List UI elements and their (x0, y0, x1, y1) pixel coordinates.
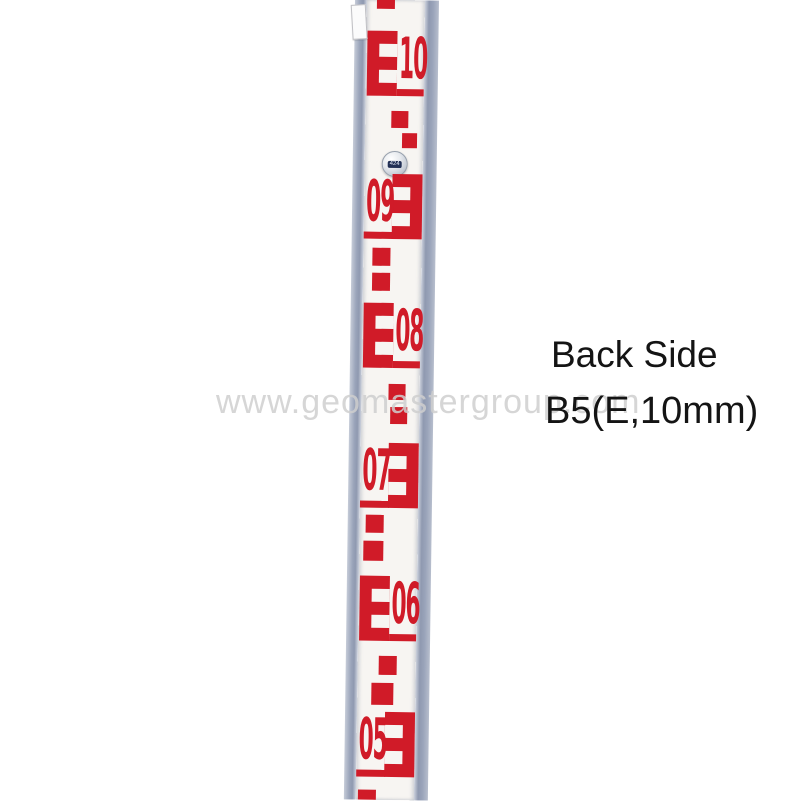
staff-number-09: 09 (366, 176, 395, 228)
staff-number-05: 05 (358, 714, 387, 766)
graduation-square (366, 515, 384, 533)
edge-sticker (351, 4, 368, 40)
number-underline (364, 232, 393, 239)
number-underline (393, 361, 420, 368)
graduation-square (379, 656, 397, 675)
staff-mark-group-08: 08 (362, 303, 421, 369)
staff-number-10: 10 (399, 33, 428, 85)
graduation-square (402, 133, 417, 148)
number-underline (397, 89, 424, 96)
staff-mark-group-10: 10 (366, 31, 425, 97)
staff-number-07: 07 (362, 445, 391, 497)
reversed-e-pattern-glyph (392, 174, 423, 239)
graduation-square (372, 248, 390, 266)
graduation-square (363, 541, 383, 561)
number-underline (356, 770, 385, 777)
staff-mark-group-05: 05 (356, 712, 415, 778)
rivet-label: 424 (388, 160, 402, 167)
graduation-square (377, 0, 395, 9)
staff-number-08: 08 (395, 305, 424, 357)
caption-model: B5(E,10mm) (545, 390, 758, 433)
e-pattern-glyph (367, 31, 398, 96)
graduation-square (358, 790, 376, 800)
caption-back-side: Back Side (551, 334, 718, 376)
graduation-square (391, 111, 408, 128)
number-underline (360, 501, 389, 508)
staff-mark-group-09: 09 (364, 174, 423, 240)
staff-mark-group-07: 07 (360, 443, 419, 509)
staff-number-06: 06 (391, 578, 420, 630)
e-pattern-glyph (359, 576, 390, 641)
reversed-e-pattern-glyph (384, 712, 415, 777)
e-pattern-glyph (363, 303, 394, 368)
number-underline (389, 634, 416, 641)
graduation-square (372, 273, 390, 291)
reversed-e-pattern-glyph (388, 443, 419, 508)
graduation-square (371, 683, 393, 705)
staff-mark-group-06: 06 (358, 576, 417, 642)
